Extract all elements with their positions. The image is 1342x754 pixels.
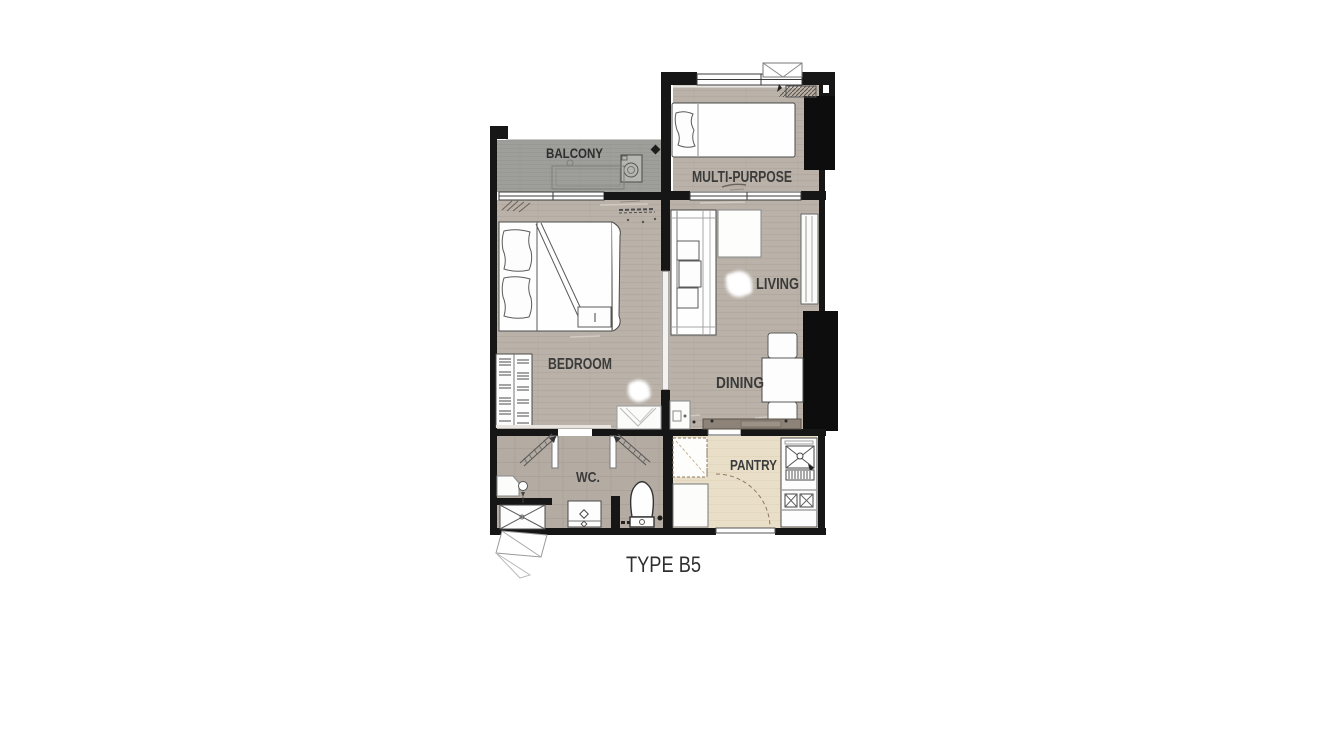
- svg-text:MULTI-PURPOSE: MULTI-PURPOSE: [692, 169, 792, 186]
- svg-text:BEDROOM: BEDROOM: [548, 356, 612, 373]
- svg-text:DINING: DINING: [716, 375, 764, 392]
- svg-text:BALCONY: BALCONY: [546, 145, 604, 161]
- svg-text:LIVING: LIVING: [756, 276, 799, 293]
- svg-text:PANTRY: PANTRY: [730, 457, 777, 474]
- svg-text:WC.: WC.: [576, 469, 600, 486]
- svg-text:TYPE B5: TYPE B5: [626, 552, 701, 577]
